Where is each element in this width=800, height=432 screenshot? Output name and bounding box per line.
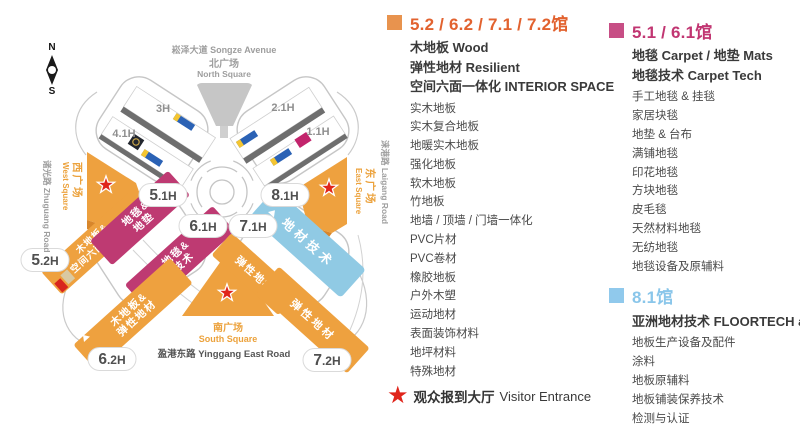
hall-pill-7-2h: 7.2H [303,349,351,372]
hall-label-11h: 1.1H [306,126,329,138]
visitor-entrance-en: Visitor Entrance [500,389,592,404]
list-item: 软木地板 [410,178,587,190]
list-item: 运动地材 [410,309,587,321]
section-body-floortech: 亚洲地材技术 FLOORTECH asia 地板生产设备及配件 涂料 地板原辅料… [609,312,797,432]
section-header-floortech: 8.1馆 [609,286,797,306]
venue-map: 木地板& 空间六面一体化 地毯& 地垫 地毯& 技术 木地板& 弹性地材 [0,0,392,426]
magenta-swatch-icon [609,23,624,38]
list-item: 地暖实木地板 [410,140,587,152]
star-icon: ★ [387,385,409,407]
hall-pill-6-1h: 6.1H [179,215,227,238]
section-header-carpet: 5.1 / 6.1馆 [609,20,797,40]
list-item: 皮毛毯 [632,204,797,216]
list-item: 天然材料地毯 [632,223,797,235]
list-item: 方块地毯 [632,185,797,197]
visitor-entrance-cn: 观众报到大厅 [414,386,495,406]
orange-swatch-icon [387,15,402,30]
list-item: 地垫 & 台布 [632,129,797,141]
hall-group-label: 8.1馆 [632,283,673,308]
blue-swatch-icon [609,288,624,303]
list-item: 户外木塑 [410,290,587,302]
hall-pill-8-1h: 8.1H [261,184,309,207]
list-item: 地毯设备及原辅料 [632,261,797,273]
item-list: 手工地毯 & 挂毯 家居块毯 地垫 & 台布 满铺地毯 印花地毯 方块地毯 皮毛… [632,91,797,273]
list-item: 特殊地材 [410,366,587,378]
list-item: PVC片材 [410,234,587,246]
songze-avenue-label: 崧泽大道 Songze Avenue [172,44,277,55]
list-item: 竹地板 [410,196,587,208]
list-item: 印花地毯 [632,167,797,179]
list-item: 满铺地毯 [632,148,797,160]
visitor-entrance-legend: ★ 观众报到大厅 Visitor Entrance [387,385,587,407]
list-item: 地板铺装保养技术 [632,394,797,406]
venue-map-svg: 木地板& 空间六面一体化 地毯& 地垫 地毯& 技术 木地板& 弹性地材 [0,0,392,426]
item-list: 实木地板 实木复合地板 地暖实木地板 强化地板 软木地板 竹地板 地墙 / 顶墙… [410,103,587,378]
svg-text:6.2H: 6.2H [98,351,125,368]
yinggang-road-label: 盈港东路 Yinggang East Road [157,348,291,360]
hall-pill-5-1h: 5.1H [139,184,187,207]
hall-pill-7-1h: 7.1H [229,215,277,238]
hall-label-41h: 4.1H [112,128,135,140]
svg-text:5.1H: 5.1H [149,187,176,204]
legend-column-carpet: 5.1 / 6.1馆 地毯 Carpet / 地垫 Mats 地毯技术 Carp… [609,12,797,432]
east-square-cn: 东广场 [364,168,377,206]
compass-icon: N S [46,42,58,97]
list-item: PVC卷材 [410,253,587,265]
section-body-wood: 木地板 Wood 弹性地材 Resilient 空间六面一体化 INTERIOR… [387,38,587,384]
hall-pill-6-2h: 6.2H [88,348,136,371]
category-headline: 亚洲地材技术 FLOORTECH asia [632,312,797,332]
svg-text:7.1H: 7.1H [239,218,266,235]
category-headline: 地毯 Carpet / 地垫 Mats [632,46,797,66]
list-item: 检测与认证 [632,413,797,425]
item-list: 地板生产设备及配件 涂料 地板原辅料 地板铺装保养技术 检测与认证 [632,337,797,425]
east-square-en: East Square [354,168,363,215]
category-headline: 弹性地材 Resilient [410,58,587,78]
hall-label-21h: 2.1H [271,102,294,114]
list-item: 手工地毯 & 挂毯 [632,91,797,103]
category-headline: 空间六面一体化 INTERIOR SPACE [410,77,587,97]
svg-text:N: N [48,42,55,53]
list-item: 地板原辅料 [632,375,797,387]
category-headline: 地毯技术 Carpet Tech [632,66,797,86]
legend-column-wood: 5.2 / 6.2 / 7.1 / 7.2馆 木地板 Wood 弹性地材 Res… [387,12,587,432]
north-square-en: North Square [197,69,251,79]
list-item: 家居块毯 [632,110,797,122]
section-body-carpet: 地毯 Carpet / 地垫 Mats 地毯技术 Carpet Tech 手工地… [609,46,797,280]
svg-text:8.1H: 8.1H [271,187,298,204]
svg-text:7.2H: 7.2H [313,352,340,369]
svg-text:S: S [49,86,56,97]
west-square-cn: 西广场 [71,162,84,200]
list-item: 涂料 [632,356,797,368]
hall-group-label: 5.2 / 6.2 / 7.1 / 7.2馆 [410,10,568,35]
list-item: 实木复合地板 [410,121,587,133]
list-item: 强化地板 [410,159,587,171]
south-square-cn: 南广场 [213,321,243,334]
svg-text:5.2H: 5.2H [31,252,58,269]
section-header-wood: 5.2 / 6.2 / 7.1 / 7.2馆 [387,12,587,32]
south-square-en: South Square [199,334,258,344]
list-item: 地板生产设备及配件 [632,337,797,349]
floorplan-poster: 木地板& 空间六面一体化 地毯& 地垫 地毯& 技术 木地板& 弹性地材 [0,0,800,426]
list-item: 橡胶地板 [410,272,587,284]
list-item: 表面装饰材料 [410,328,587,340]
central-plaza-ring [191,161,253,223]
list-item: 实木地板 [410,103,587,115]
hall-group-label: 5.1 / 6.1馆 [632,18,712,43]
svg-text:6.1H: 6.1H [189,218,216,235]
list-item: 无纺地毯 [632,242,797,254]
list-item: 地墙 / 顶墙 / 门墙一体化 [410,215,587,227]
zhuguang-road-label: 诸光路 Zhuguang Road [42,160,52,253]
legend-panel: 5.2 / 6.2 / 7.1 / 7.2馆 木地板 Wood 弹性地材 Res… [387,12,797,432]
category-headline: 木地板 Wood [410,38,587,58]
hall-label-3h: 3H [156,103,170,115]
west-square-en: West Square [61,162,70,211]
list-item: 地坪材料 [410,347,587,359]
